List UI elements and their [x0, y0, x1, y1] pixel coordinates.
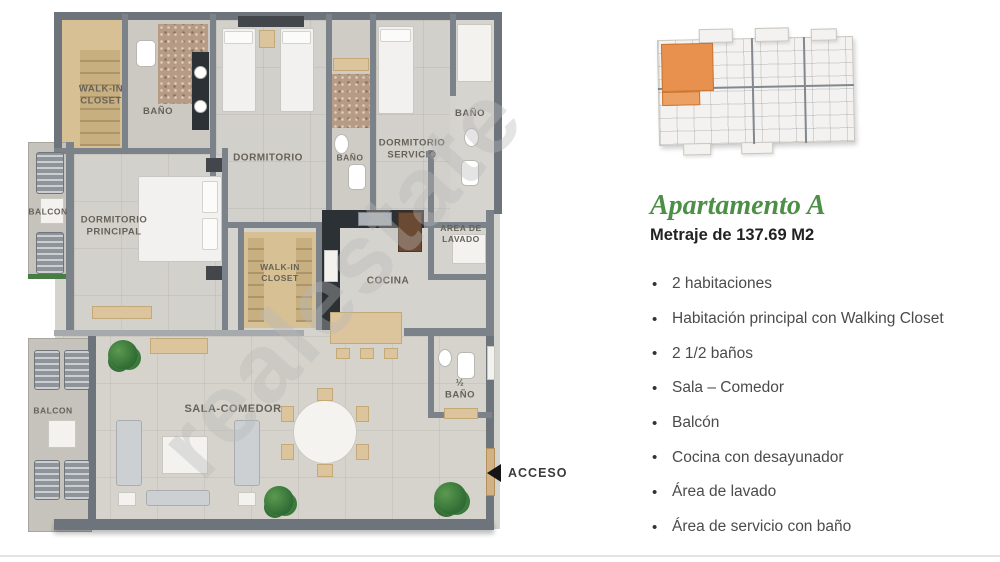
- room-label-walkin-closet-1: WALK-IN CLOSET: [65, 84, 137, 109]
- feature-text: 2 habitaciones: [672, 275, 772, 293]
- feature-item: •Sala – Comedor: [652, 371, 997, 406]
- dining-table: [293, 400, 357, 464]
- lounge-chair: [64, 350, 90, 390]
- bullet-icon: •: [652, 449, 672, 466]
- room-label-kitchen: COCINA: [367, 275, 409, 288]
- bullet-icon: •: [652, 484, 672, 501]
- dining-chair: [356, 444, 369, 460]
- feature-item: •2 habitaciones: [652, 267, 997, 302]
- wall-right-lower-b: [486, 496, 494, 528]
- sink: [194, 66, 207, 79]
- wall-bottom: [54, 519, 494, 530]
- room-label-living-dining: SALA-COMEDOR: [173, 402, 293, 416]
- room-label-laundry: AREA DE LAVADO: [436, 223, 486, 245]
- feature-text: Cocina con desayunador: [672, 449, 843, 467]
- wall-bedroom2-bath2: [326, 14, 332, 228]
- bath-1-vanity: [192, 52, 209, 130]
- bedroom-2-nightstand: [259, 30, 275, 48]
- bed-pillow: [202, 181, 218, 213]
- room-label-master-bedroom: DORMITORIO PRINCIPAL: [71, 215, 157, 240]
- breakfast-bar: [330, 312, 402, 344]
- bed-pillow: [224, 31, 253, 44]
- key-plan-tab: [741, 142, 773, 155]
- balcony-table: [48, 420, 76, 448]
- bullet-icon: •: [652, 519, 672, 536]
- apartment-title: Apartamento A: [650, 190, 826, 222]
- feature-item: •Cocina con desayunador: [652, 440, 997, 475]
- real-estate-listing-image: WALK-IN CLOSET BAÑO DORMITORIO BAÑO DORM…: [0, 0, 1000, 562]
- bed-pillow: [202, 218, 218, 250]
- bedroom-2-closet: [238, 16, 304, 27]
- dining-chair: [317, 388, 333, 401]
- apartment-area: Metraje de 137.69 M2: [650, 226, 814, 245]
- sofa-right: [234, 420, 260, 486]
- wall-right-mid: [486, 210, 494, 332]
- bath-3-shower: [457, 24, 492, 82]
- room-label-bath-3: BAÑO: [455, 108, 485, 120]
- bullet-icon: •: [652, 345, 672, 362]
- wall-halfbath-top: [404, 328, 494, 336]
- toilet: [348, 164, 366, 190]
- feature-item: •Habitación principal con Walking Closet: [652, 302, 997, 337]
- feature-item: •Área de servicio con baño: [652, 510, 997, 545]
- room-label-balcony-1: BALCON: [28, 206, 67, 217]
- bullet-icon: •: [652, 415, 672, 432]
- feature-text: 2 1/2 baños: [672, 345, 753, 363]
- feature-text: Habitación principal con Walking Closet: [672, 310, 944, 328]
- feature-item: •Balcón: [652, 406, 997, 441]
- wall-closet2-left: [238, 228, 244, 330]
- toilet: [136, 40, 156, 67]
- console-table: [150, 338, 208, 354]
- lounge-chair: [36, 232, 64, 274]
- sink: [334, 134, 349, 154]
- room-label-bath-2: BAÑO: [336, 152, 363, 163]
- plant: [108, 340, 138, 370]
- bottom-divider: [0, 555, 1000, 557]
- sink: [464, 128, 479, 147]
- lounge-chair: [64, 460, 90, 500]
- wall-halfbath-left: [428, 332, 434, 418]
- bench-seat: [146, 490, 210, 506]
- bullet-icon: •: [652, 276, 672, 293]
- side-table: [118, 492, 136, 506]
- wall-service-bath3: [450, 14, 456, 96]
- room-label-bath-1: BAÑO: [143, 106, 173, 118]
- feature-text: Balcón: [672, 414, 719, 432]
- toilet: [461, 160, 479, 186]
- halfbath-bench: [444, 408, 478, 419]
- feature-item: •2 1/2 baños: [652, 336, 997, 371]
- dining-chair: [356, 406, 369, 422]
- side-table: [238, 492, 256, 506]
- feature-item: •Área de lavado: [652, 475, 997, 510]
- wall-left-upper: [54, 12, 62, 154]
- bullet-icon: •: [652, 311, 672, 328]
- highlighted-unit-a-annex: [662, 91, 700, 106]
- feature-text: Sala – Comedor: [672, 379, 784, 397]
- kitchen-stove: [358, 212, 392, 226]
- room-label-bedroom-2: DORMITORIO: [218, 152, 318, 165]
- master-nightstand: [206, 266, 222, 280]
- room-label-walkin-closet-2: WALK-IN CLOSET: [252, 262, 308, 284]
- dining-chair: [317, 464, 333, 477]
- master-bench: [92, 306, 152, 319]
- bed-pillow: [282, 31, 311, 44]
- plant: [264, 486, 294, 516]
- lounge-chair: [34, 350, 60, 390]
- bar-chair: [384, 348, 398, 359]
- building-key-plan: [651, 20, 862, 162]
- bath-2-mosaic: [332, 74, 370, 128]
- key-plan-tab: [699, 28, 733, 43]
- kitchen-sink-unit: [324, 250, 338, 282]
- sink: [438, 349, 452, 367]
- access-label: ACCESO: [508, 466, 567, 480]
- sink: [194, 100, 207, 113]
- lounge-chair: [34, 460, 60, 500]
- plant: [434, 482, 467, 515]
- halfbath-door: [487, 346, 495, 380]
- bullet-icon: •: [652, 380, 672, 397]
- room-label-balcony-2: BALCON: [33, 405, 72, 416]
- sofa-left: [116, 420, 142, 486]
- feature-text: Área de lavado: [672, 483, 776, 501]
- coffee-table: [162, 436, 208, 474]
- balcony-1-planter: [28, 274, 70, 279]
- highlighted-unit-a: [661, 43, 714, 92]
- key-plan-tab: [755, 27, 789, 42]
- lounge-chair: [36, 152, 64, 194]
- key-plan-tab: [811, 28, 837, 41]
- wall-master-right: [222, 148, 228, 330]
- floor-plan: WALK-IN CLOSET BAÑO DORMITORIO BAÑO DORM…: [0, 0, 660, 562]
- wall-under-bath1: [54, 148, 214, 154]
- key-plan-tab: [683, 143, 711, 156]
- feature-text: Área de servicio con baño: [672, 518, 851, 536]
- bath-2-cabinet: [333, 58, 369, 71]
- wall-laundry-bottom: [428, 274, 492, 280]
- dining-chair: [281, 444, 294, 460]
- wall-right-upper: [494, 12, 502, 214]
- bed-pillow: [380, 29, 411, 42]
- wall-hall-living: [54, 330, 304, 336]
- room-label-half-bath: ½ BAÑO: [442, 378, 478, 403]
- feature-list: •2 habitaciones •Habitación principal co…: [652, 267, 997, 545]
- bar-chair: [360, 348, 374, 359]
- kitchen-fridge: [398, 212, 422, 252]
- toilet: [457, 352, 475, 379]
- wall-bath2-service: [370, 14, 376, 228]
- bar-chair: [336, 348, 350, 359]
- wall-laundry-left: [428, 150, 434, 278]
- room-label-service-bedroom: DORMITORIO SERVICIO: [373, 138, 451, 163]
- access-arrow-icon: [487, 464, 501, 482]
